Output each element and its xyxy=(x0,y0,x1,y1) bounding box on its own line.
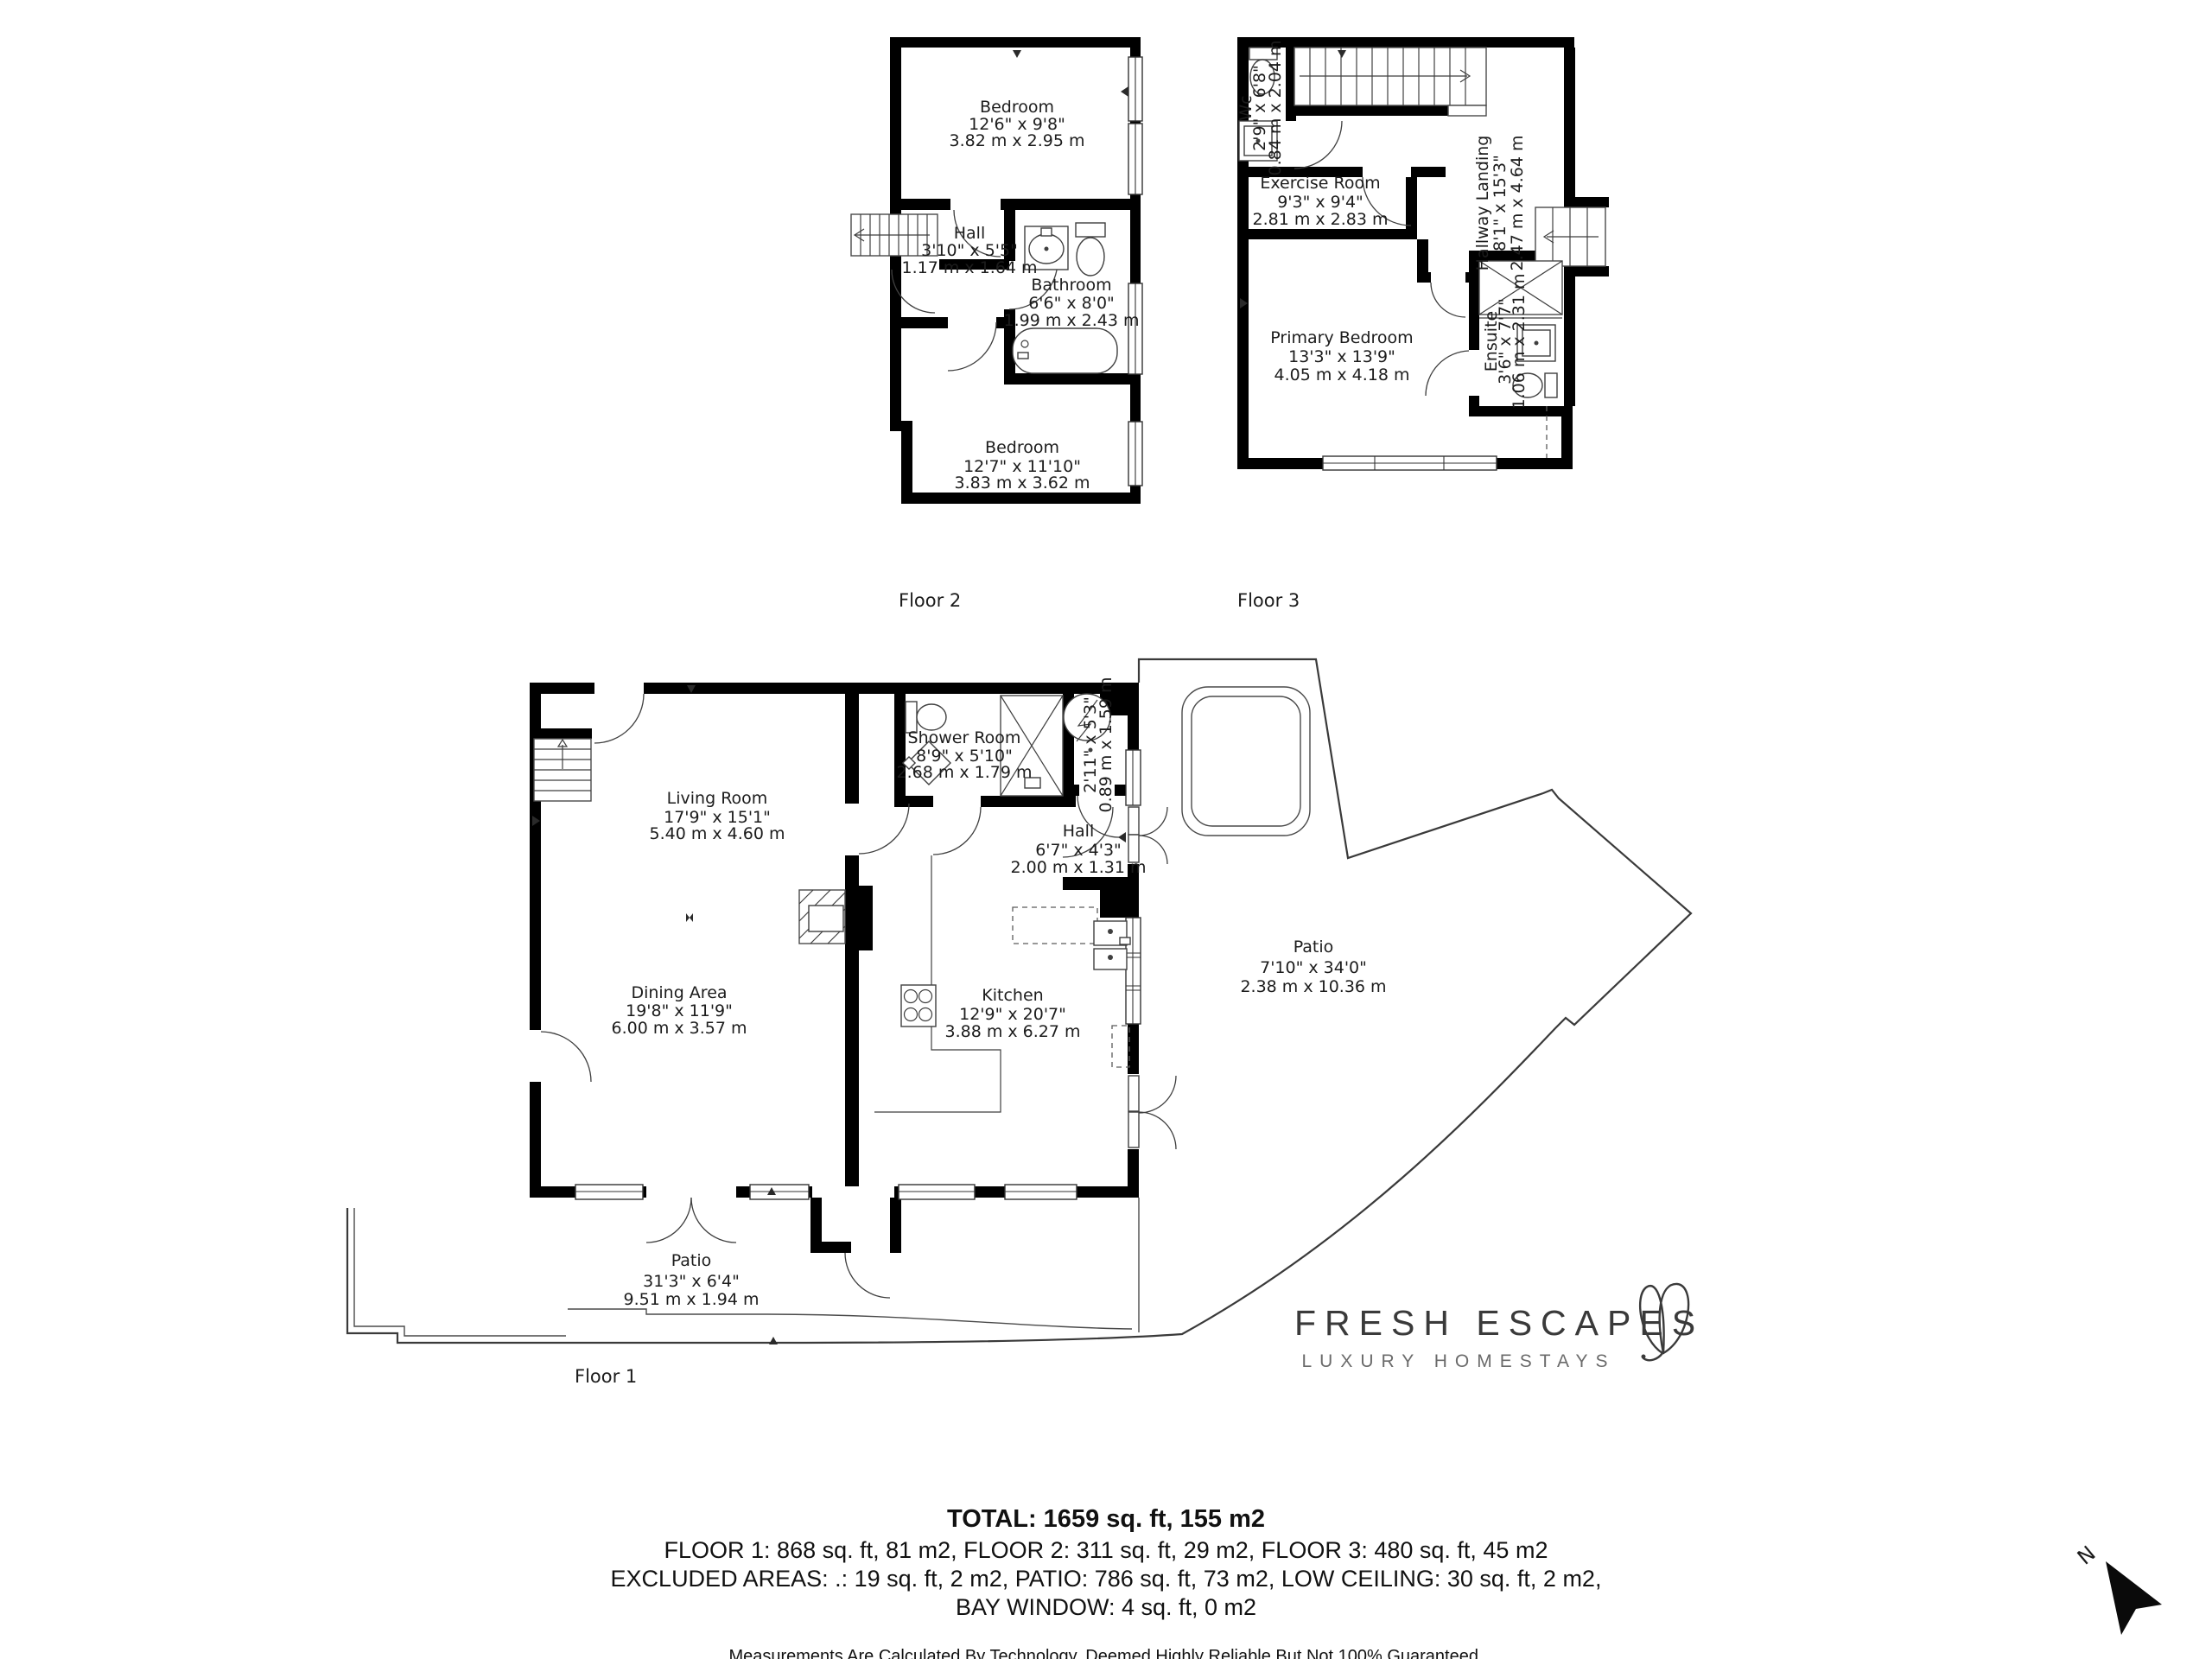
floor2-label: Floor 2 xyxy=(899,590,961,611)
floor3-exercise-name: Exercise Room xyxy=(1260,174,1380,193)
floor2-bedroom-bottom-name: Bedroom xyxy=(985,438,1059,457)
kitchen-counter xyxy=(874,855,1129,1112)
area-summary: TOTAL: 1659 sq. ft, 155 m2 FLOOR 1: 868 … xyxy=(346,1505,1866,1659)
floor1-dining-name: Dining Area xyxy=(631,983,727,1002)
floor1-living-name: Living Room xyxy=(667,789,768,808)
fireplace-icon xyxy=(799,890,845,944)
floor1-patio-side-name: Patio xyxy=(1294,938,1334,957)
floor3-hallway-metric: 2.47 m x 4.64 m xyxy=(1508,135,1527,270)
floorplan-page: Bedroom 12'6" x 9'8" 3.82 m x 2.95 m Hal… xyxy=(0,0,2212,1659)
hot-tub-icon xyxy=(1182,687,1310,836)
floor3-exercise-metric: 2.81 m x 2.83 m xyxy=(1252,210,1388,229)
floor1-dining-imperial: 19'8" x 11'9" xyxy=(626,1001,733,1020)
door-arc xyxy=(1294,121,1342,168)
stairs-icon xyxy=(1535,207,1605,266)
door-arc xyxy=(594,694,644,743)
door-arc xyxy=(691,1198,736,1243)
floor1-kitchen-metric: 3.88 m x 6.27 m xyxy=(944,1022,1080,1041)
door-arc xyxy=(1426,351,1469,396)
floor2-bedroom-top-name: Bedroom xyxy=(980,98,1054,117)
floor3-hallway-name: Hallway Landing xyxy=(1473,136,1492,271)
floor1-plan: Living Room 17'9" x 15'1" 5.40 m x 4.60 … xyxy=(347,659,1691,1387)
stairs-icon xyxy=(534,739,591,801)
floorplan-drawing: Bedroom 12'6" x 9'8" 3.82 m x 2.95 m Hal… xyxy=(0,0,2212,1659)
window-icon xyxy=(1323,456,1497,470)
door-arc xyxy=(845,1253,890,1298)
floor2-bedroom-top-metric: 3.82 m x 2.95 m xyxy=(949,131,1084,150)
floor3-ensuite-metric: 1.06 m x 2.31 m xyxy=(1510,273,1529,409)
brand-name: FRESH ESCAPES xyxy=(1294,1303,1623,1344)
floor1-hall-name: Hall xyxy=(1063,822,1095,841)
excluded-areas: EXCLUDED AREAS: .: 19 sq. ft, 2 m2, PATI… xyxy=(346,1566,1866,1592)
floor3-primary-imperial: 13'3" x 13'9" xyxy=(1288,347,1395,366)
floor1-patio-side-imperial: 7'10" x 34'0" xyxy=(1260,958,1367,977)
floor3-exercise-imperial: 9'3" x 9'4" xyxy=(1277,193,1363,212)
floor2-bathroom-imperial: 6'6" x 8'0" xyxy=(1028,294,1115,313)
floor2-hall-metric: 1.17 m x 1.64 m xyxy=(901,258,1037,277)
floor2-bedroom-bottom-metric: 3.83 m x 3.62 m xyxy=(954,474,1090,493)
floor1-patio-front-metric: 9.51 m x 1.94 m xyxy=(623,1290,759,1309)
bay-window-area: BAY WINDOW: 4 sq. ft, 0 m2 xyxy=(346,1594,1866,1621)
floor1-dining-metric: 6.00 m x 3.57 m xyxy=(611,1019,747,1038)
door-arc xyxy=(933,807,981,855)
disclaimer: Measurements Are Calculated By Technolog… xyxy=(346,1647,1866,1659)
floor1-shower-name: Shower Room xyxy=(908,728,1021,747)
floor2-plan: Bedroom 12'6" x 9'8" 3.82 m x 2.95 m Hal… xyxy=(851,37,1142,611)
floor1-closet-metric: 0.89 m x 1.59 m xyxy=(1096,677,1116,812)
center-marker-icon xyxy=(686,913,693,922)
floor1-shower-metric: 2.68 m x 1.79 m xyxy=(896,763,1032,782)
compass-label: N xyxy=(2073,1541,2101,1570)
floor-areas: FLOOR 1: 868 sq. ft, 81 m2, FLOOR 2: 311… xyxy=(346,1537,1866,1564)
floor3-hallway-imperial: 8'1" x 15'3" xyxy=(1491,155,1510,251)
floor2-hall-imperial: 3'10" x 5'5" xyxy=(921,241,1018,260)
total-area: TOTAL: 1659 sq. ft, 155 m2 xyxy=(346,1505,1866,1534)
floor3-primary-metric: 4.05 m x 4.18 m xyxy=(1274,365,1409,385)
floor3-plan: Wc 2'9" x 6'8" 0.84 m x 2.04 m Exercise … xyxy=(1236,37,1609,611)
door-arc xyxy=(859,804,909,854)
brand-block: FRESH ESCAPES LUXURY HOMESTAYS xyxy=(1294,1303,1623,1372)
floor3-label: Floor 3 xyxy=(1237,590,1300,611)
toilet-icon xyxy=(1076,223,1105,276)
door-arc xyxy=(948,322,996,371)
floor1-kitchen-name: Kitchen xyxy=(982,986,1043,1005)
stove-icon xyxy=(901,985,936,1027)
north-arrow-icon: N xyxy=(2073,1541,2162,1635)
door-arc xyxy=(646,1198,691,1243)
kitchen-sink-icon xyxy=(1094,921,1130,969)
floor3-wc-metric: 0.84 m x 2.04 m xyxy=(1266,40,1285,175)
floor2-bathroom-metric: 1.99 m x 2.43 m xyxy=(1003,311,1139,330)
floor1-living-metric: 5.40 m x 4.60 m xyxy=(649,824,785,843)
floor3-primary-name: Primary Bedroom xyxy=(1270,328,1413,347)
floor1-patio-side-metric: 2.38 m x 10.36 m xyxy=(1240,977,1386,996)
floor1-patio-front-name: Patio xyxy=(671,1251,712,1270)
stairs-icon xyxy=(1294,48,1486,116)
floor2-hall-name: Hall xyxy=(954,224,986,243)
floor1-label: Floor 1 xyxy=(575,1366,637,1387)
brand-tagline: LUXURY HOMESTAYS xyxy=(1294,1351,1623,1372)
floor2-bathroom-name: Bathroom xyxy=(1031,276,1111,295)
floor1-hall-metric: 2.00 m x 1.31 m xyxy=(1010,858,1146,877)
bathtub-icon xyxy=(1013,328,1117,373)
door-arc xyxy=(541,1032,591,1082)
floor1-patio-front-imperial: 31'3" x 6'4" xyxy=(643,1272,740,1291)
door-arc xyxy=(1431,283,1465,317)
floor1-kitchen-imperial: 12'9" x 20'7" xyxy=(959,1005,1066,1024)
floor1-hall-imperial: 6'7" x 4'3" xyxy=(1035,841,1122,860)
